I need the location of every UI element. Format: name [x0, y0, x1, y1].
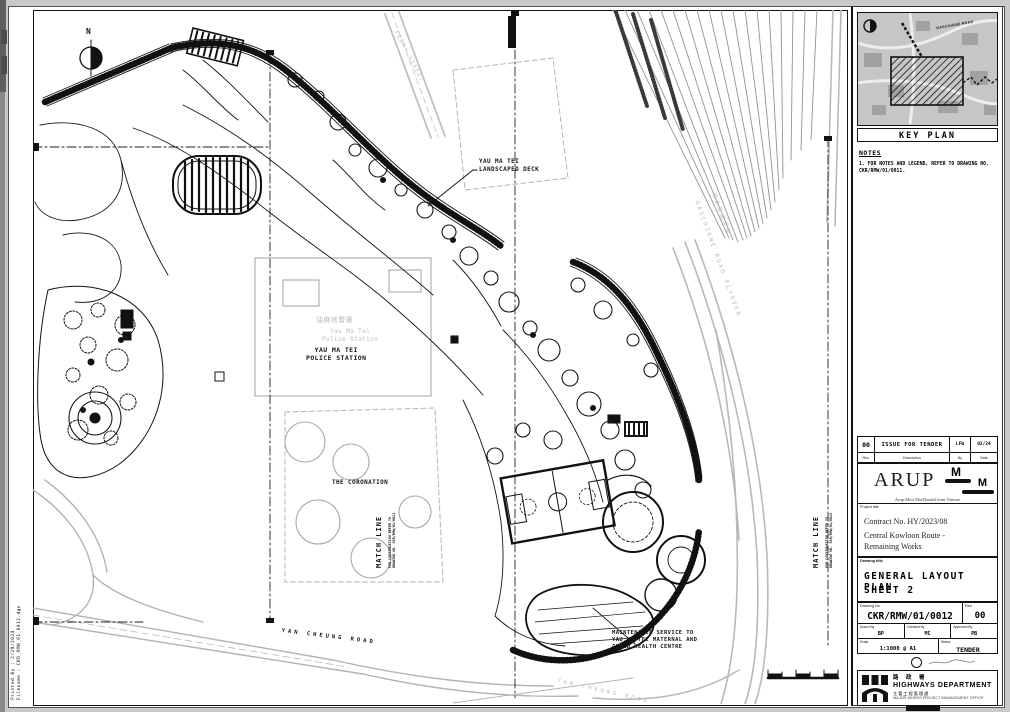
deck-label: YAU MA TEI LANDSCAPED DECK: [479, 158, 539, 174]
key-plan-map: GASCOIGNE ROAD: [857, 12, 998, 126]
checked-by-value: MC: [905, 631, 951, 637]
hatched-kerbs: [45, 43, 699, 660]
arup-wordmark: ARUP: [874, 469, 935, 492]
roundabout: [69, 392, 121, 444]
police-station-chinese-label: 油麻地警署: [316, 316, 353, 325]
highways-department-block: 路 政 署 HIGHWAYS DEPARTMENT 主要工程管理處 MAJOR …: [857, 670, 998, 706]
project-line2: Central Kowloon Route -: [864, 531, 945, 540]
leader-lines: [428, 170, 635, 644]
flyover-curves: [593, 10, 841, 704]
edge-marker: [1, 56, 7, 74]
drawn-by-value: BP: [858, 631, 904, 637]
drawing-title-box: Drawing title GENERAL LAYOUT PLAN SHEET …: [857, 557, 998, 602]
scale-value: 1:1000 @ A1: [858, 646, 938, 652]
key-plan-caption: KEY PLAN: [857, 128, 998, 142]
scale-label: Scale: [860, 640, 868, 644]
notes-section: NOTES 1. FOR NOTES AND LEGEND, REFER TO …: [857, 147, 998, 433]
drawing-number-value: CKR/RMW/01/0012: [858, 611, 962, 622]
notes-item: 1. FOR NOTES AND LEGEND, REFER TO DRAWIN…: [859, 161, 998, 175]
revision-description: ISSUE FOR TENDER: [875, 437, 950, 452]
approved-by-value: PB: [951, 631, 997, 637]
striped-structure-large: [173, 156, 261, 214]
mott-macdonald-bar: [945, 479, 971, 483]
department-name: HIGHWAYS DEPARTMENT: [893, 682, 992, 691]
drawing-number-label: Drawing No.: [860, 604, 881, 608]
drawn-by-label: Drawn By: [860, 625, 874, 629]
mott-macdonald-m2-icon: M: [978, 477, 987, 489]
playground-planting: [38, 286, 224, 477]
consultant-logo-block: ARUP M M Arup-Mott MacDonald Joint Ventu…: [857, 463, 998, 504]
stamp-circle-icon: [911, 657, 922, 668]
match-line-left-label: MATCH LINE: [375, 516, 384, 568]
signature-stamp-strip: [857, 656, 998, 668]
project-line3: Remaining Works: [864, 542, 922, 551]
title-block: GASCOIGNE ROAD KEY PLAN NOTES 1. FOR NOT…: [851, 6, 1003, 706]
mott-macdonald-m-icon: M: [951, 465, 961, 479]
approved-by-label: Approved By: [953, 625, 972, 629]
match-line-left-note: FOR CONTINUATION REFER TO DRAWING NO. CK…: [388, 513, 397, 568]
revision-row: 00 ISSUE FOR TENDER LFW 02/24: [857, 436, 998, 453]
project-title-label: Project title: [860, 505, 879, 509]
police-station-map-label: Yau Ma Tei Police Station: [322, 328, 378, 344]
plan-linework: [33, 10, 846, 704]
revision-header-rev: Rev.: [858, 453, 875, 462]
status-value: TENDER: [939, 646, 997, 654]
match-line-right-note: FOR CONTINUATION REFER TO DRAWING NO. CK…: [825, 513, 834, 568]
maintenance-note-label: MAINTENANCE SERVICE TO YAU MA TEI MATERN…: [612, 630, 697, 651]
scan-edge-shadow: [0, 0, 5, 712]
scanned-drawing-sheet: { "colors": {"ink": "#1a1a1a", "faint_ma…: [0, 0, 1010, 712]
edge-marker: [1, 30, 7, 44]
revision-by: LFW: [950, 437, 971, 452]
scale-row: Scale 1:1000 @ A1 Status TENDER: [857, 639, 998, 654]
mott-macdonald-bar2: [962, 490, 994, 494]
basketball-court: [501, 460, 615, 543]
joint-venture-caption: Arup-Mott MacDonald Joint Venture: [858, 497, 997, 502]
signature-row: Drawn By BP Checked By MC Approved By PB: [857, 624, 998, 639]
signature-scribble: [929, 660, 975, 664]
railway-dark-hatch: [616, 12, 683, 130]
highways-department-logo: [862, 675, 888, 702]
police-station-label: YAU MA TEI POLICE STATION: [306, 346, 366, 363]
notes-heading: NOTES: [859, 149, 998, 157]
coronation-label: THE CORONATION: [332, 479, 388, 487]
revision-headers: Rev. Description By Date: [857, 453, 998, 463]
building-outlines: [255, 258, 431, 578]
revision-header-description: Description: [875, 453, 950, 462]
filename-note: Filename : CKR_RMW_01_0012.dgn: [17, 570, 23, 700]
drawing-title-line2: SHEET 2: [864, 585, 915, 596]
drawing-number-box: Drawing No. CKR/RMW/01/0012 Rev. 00: [857, 602, 998, 624]
north-arrow: [80, 40, 102, 76]
office-name: MAJOR WORKS PROJECT MANAGEMENT OFFICE: [893, 696, 992, 701]
project-title-box: Project title Contract No. HY/2023/08 Ce…: [857, 504, 998, 557]
revision-header-by: By: [950, 453, 971, 462]
project-line1: Contract No. HY/2023/08: [864, 517, 947, 526]
department-name-chinese: 路 政 署: [893, 675, 992, 682]
rev-label: Rev.: [965, 604, 973, 608]
match-line-right-label: MATCH LINE: [812, 516, 821, 568]
scale-bar: [768, 670, 838, 678]
revision-header-date: Date: [971, 453, 997, 462]
checked-by-label: Checked By: [907, 625, 925, 629]
scan-edge-shadow-dark: [0, 0, 6, 92]
drawing-title-label: Drawing title: [860, 559, 883, 563]
kerb-edges: [43, 39, 702, 482]
revision-number: 00: [858, 437, 875, 452]
status-label: Status: [941, 640, 950, 644]
rev-value: 00: [963, 611, 997, 621]
revision-date: 02/24: [971, 437, 997, 452]
north-label: N: [86, 27, 91, 37]
